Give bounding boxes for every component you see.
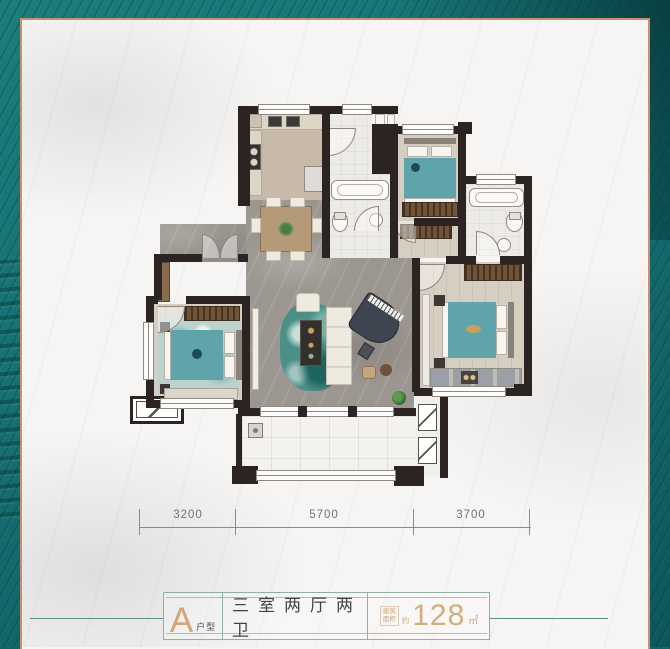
wall — [458, 256, 476, 264]
dining-chair — [251, 218, 261, 233]
window — [402, 124, 454, 135]
kitchen-sink-icon — [286, 116, 300, 127]
wall-pillar — [394, 466, 424, 486]
bed-headboard — [508, 302, 514, 358]
wall — [238, 254, 248, 262]
window — [258, 104, 310, 115]
dining-chair — [290, 251, 305, 261]
bathtub — [469, 188, 524, 207]
toilet — [506, 212, 523, 232]
sofa — [326, 307, 352, 385]
bath-lobby-floor — [328, 236, 392, 258]
dimension-tick — [529, 509, 530, 535]
wall — [390, 174, 398, 258]
dimension-tick — [413, 509, 414, 535]
floor-plan: 3200 5700 3700 A 户型 三室两厅两卫 建筑 面积 约 128 ㎡ — [0, 0, 670, 647]
dining-chair — [266, 197, 281, 207]
dining-centerpiece — [278, 222, 294, 236]
wall — [524, 176, 532, 268]
window — [143, 322, 154, 380]
bed-cushion — [192, 349, 202, 359]
area-prefix: 建筑 面积 — [380, 606, 399, 626]
plan-letter: A — [170, 604, 193, 638]
wall — [458, 130, 466, 256]
wall — [440, 394, 448, 478]
sliding-door-mullion — [298, 406, 307, 417]
ac-unit-icon — [418, 404, 437, 431]
sliding-door — [260, 406, 394, 417]
toilet — [332, 212, 348, 232]
area-prefix-line1: 建筑 — [383, 608, 396, 615]
wall — [446, 256, 458, 264]
window — [476, 174, 516, 185]
wall — [322, 106, 330, 258]
wall — [154, 254, 202, 262]
tv-console — [252, 308, 259, 390]
dimension-label: 3700 — [436, 509, 506, 521]
wardrobe — [402, 202, 458, 217]
armchair — [296, 293, 320, 312]
wall — [238, 106, 250, 206]
wall — [392, 408, 416, 416]
wall — [524, 268, 532, 392]
dining-chair — [266, 251, 281, 261]
dimension-label: 3200 — [153, 509, 223, 521]
plan-letter-label: 户型 — [196, 620, 216, 633]
bed-cushion — [466, 325, 481, 333]
bed-pillow — [224, 332, 235, 354]
wardrobe — [464, 264, 522, 281]
area-about: 约 — [402, 615, 410, 626]
area-prefix-line2: 面积 — [383, 616, 396, 623]
ac-unit-icon — [418, 437, 437, 464]
wall — [412, 258, 420, 392]
area-cell: 建筑 面积 约 128 ㎡ — [368, 592, 490, 640]
bed-pillow — [431, 146, 452, 157]
balcony-window — [256, 470, 396, 481]
area-value: 128 — [412, 599, 465, 633]
coffee-table — [300, 320, 322, 366]
balcony-floor — [242, 416, 416, 476]
stool — [380, 364, 392, 376]
wall — [242, 296, 250, 414]
footer-rule-right — [490, 618, 608, 619]
dimension-tick — [139, 509, 140, 535]
tv-console — [422, 294, 430, 386]
area-unit: ㎡ — [468, 612, 478, 627]
dining-chair — [290, 197, 305, 207]
bench-tray — [461, 371, 478, 384]
bed-cushion — [411, 163, 420, 172]
bed-pillow — [496, 331, 507, 355]
bed-headboard — [404, 138, 456, 144]
layout-title: 三室两厅两卫 — [223, 592, 367, 640]
bed-pillow — [224, 356, 235, 378]
bed-foot-throw — [164, 330, 171, 380]
wall — [236, 414, 242, 472]
dimension-tick — [235, 509, 236, 535]
plan-type-cell: A 户型 — [164, 594, 222, 638]
bathtub — [331, 180, 389, 200]
window — [160, 398, 234, 409]
dimension-line — [140, 527, 531, 528]
wall — [414, 218, 466, 226]
kitchen-sink-icon — [268, 116, 282, 127]
floor-drain-icon — [248, 423, 263, 438]
dimension-label: 5700 — [289, 509, 359, 521]
window — [432, 386, 506, 397]
wardrobe — [184, 306, 240, 321]
dining-chair — [312, 218, 322, 233]
bed-pillow — [496, 305, 507, 329]
footer-rule-left — [30, 618, 163, 619]
window — [342, 104, 372, 115]
stool — [362, 366, 376, 379]
wall — [186, 296, 250, 304]
fridge — [304, 166, 324, 192]
nightstand — [434, 295, 445, 306]
bed-pillow — [407, 146, 428, 157]
plant-icon — [392, 391, 406, 405]
sliding-door-mullion — [348, 406, 357, 417]
wall — [500, 256, 532, 264]
